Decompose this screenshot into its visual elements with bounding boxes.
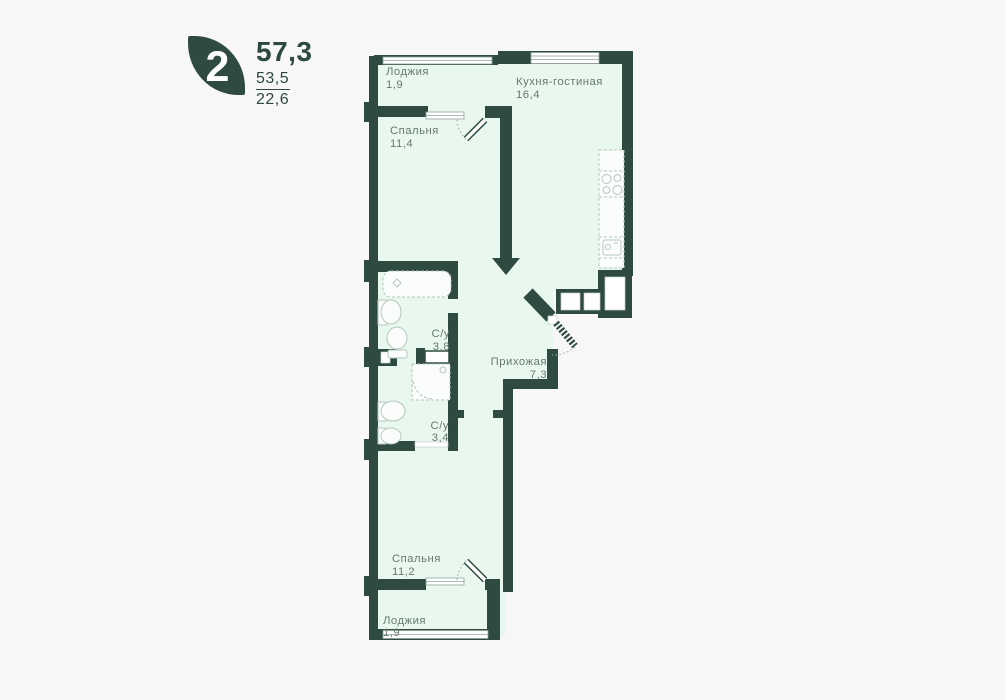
- label-hallway-area: 7,3: [530, 369, 547, 381]
- label-bathroom-top-area: 3,8: [433, 341, 450, 353]
- door-hinge-gap: [548, 316, 557, 324]
- label-bedroom-bottom-name: Спальня: [392, 553, 441, 565]
- window-loggia-top: [383, 57, 492, 64]
- label-loggia-bottom-name: Лоджия: [383, 615, 426, 627]
- sink-top-bathroom: [378, 300, 401, 325]
- closet-box-1: [561, 293, 580, 310]
- label-hallway-name: Прихожая: [491, 356, 547, 368]
- label-kitchen-name: Кухня-гостиная: [516, 76, 603, 88]
- toilet-bottom-bathroom: [378, 401, 405, 421]
- label-bedroom-bottom-area: 11,2: [392, 566, 415, 578]
- shower: [412, 364, 450, 400]
- closet-box-2: [584, 293, 600, 310]
- sink-bottom-bathroom: [378, 428, 401, 444]
- floor-plan-page: 2 57,3 53,5 22,6: [0, 0, 1006, 700]
- label-kitchen-area: 16,4: [516, 89, 540, 101]
- vent-shaft: [605, 277, 625, 310]
- floor-plan: Лоджия 1,9 Кухня-гостиная 16,4 Спальня 1…: [0, 0, 1006, 700]
- label-bathroom-bottom-area: 3,4: [432, 432, 449, 444]
- window-kitchen: [531, 53, 599, 64]
- label-loggia-bottom-area: 1,9: [383, 627, 400, 639]
- label-loggia-top-area: 1,9: [386, 79, 403, 91]
- label-bathroom-top-name: С/у: [432, 328, 450, 340]
- label-bedroom-top-name: Спальня: [390, 125, 439, 137]
- label-loggia-top-name: Лоджия: [386, 66, 429, 78]
- window-bedroom-bottom: [426, 578, 464, 585]
- toilet-top-bathroom: [387, 327, 407, 358]
- label-bathroom-bottom-name: С/у: [431, 420, 449, 432]
- bathtub: [383, 271, 451, 297]
- label-bedroom-top-area: 11,4: [390, 138, 413, 150]
- window-bedroom-top: [426, 112, 464, 119]
